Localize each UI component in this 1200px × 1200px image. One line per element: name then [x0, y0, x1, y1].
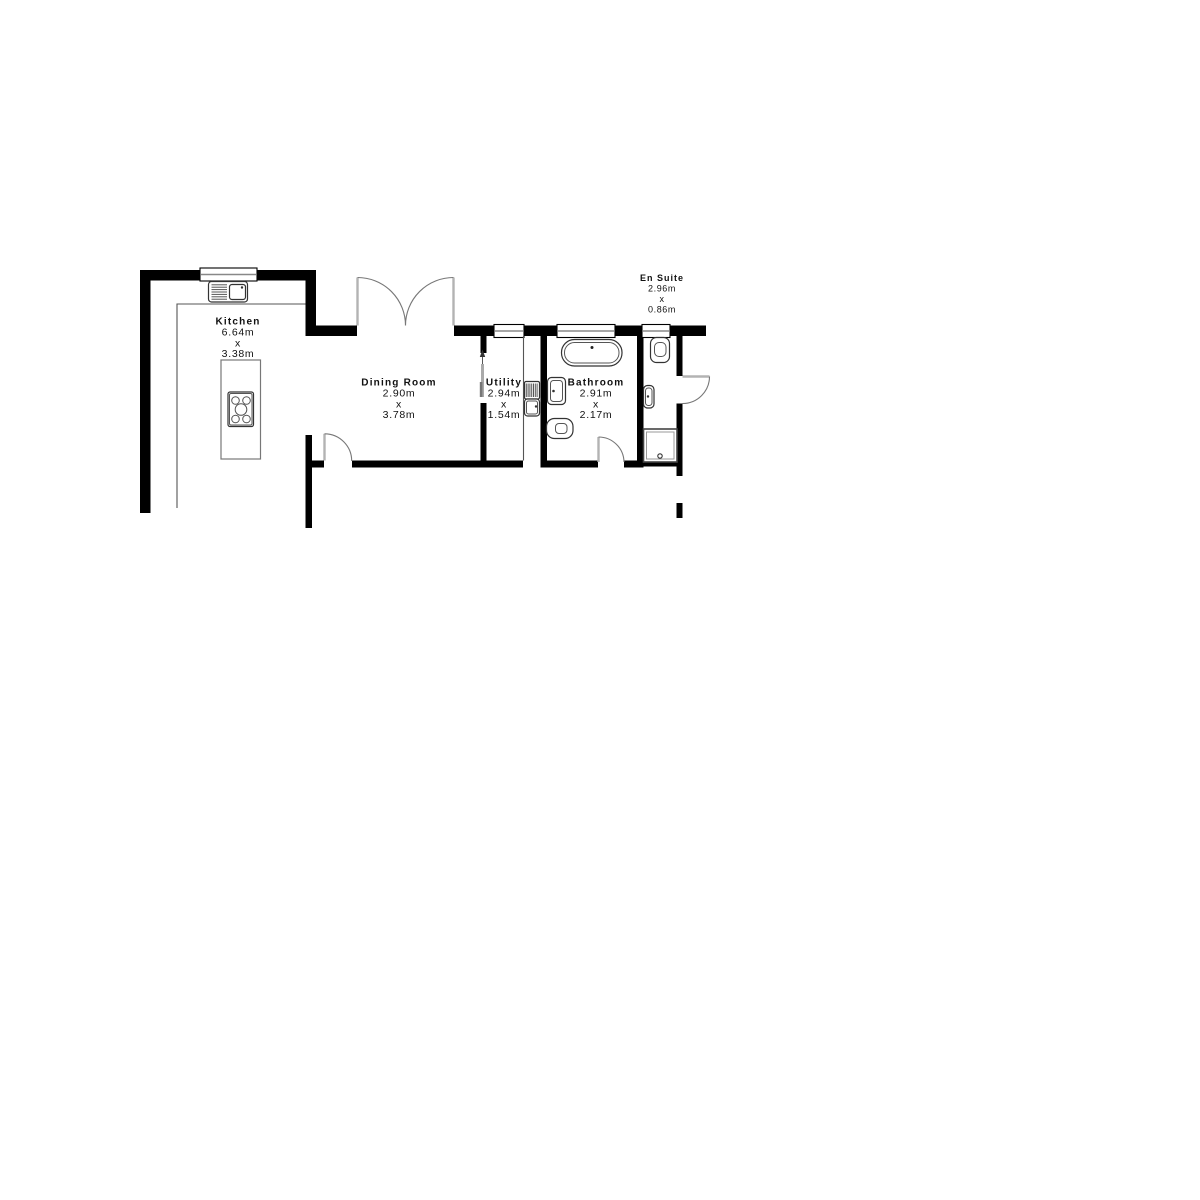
svg-text:2.96m: 2.96m [648, 284, 676, 294]
svg-text:1.54m: 1.54m [488, 409, 521, 421]
svg-text:2.17m: 2.17m [580, 409, 613, 421]
svg-text:0.86m: 0.86m [648, 305, 676, 315]
svg-text:3.38m: 3.38m [222, 348, 255, 360]
svg-text:3.78m: 3.78m [383, 409, 416, 421]
svg-text:x: x [659, 294, 664, 304]
svg-text:En Suite: En Suite [640, 273, 684, 283]
